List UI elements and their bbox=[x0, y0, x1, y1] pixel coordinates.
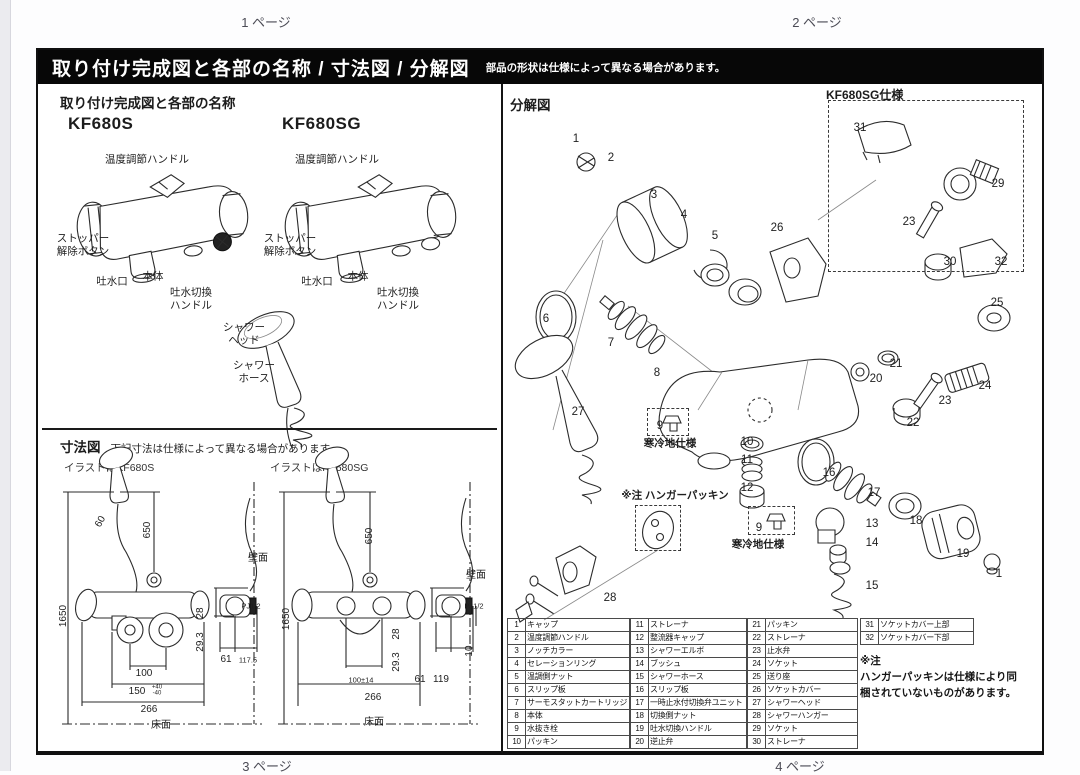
table-row: 20逆止弁 bbox=[631, 736, 747, 749]
part-number: 23 bbox=[748, 645, 766, 658]
dimension-drawing-kf680sg bbox=[270, 440, 485, 740]
section-header-note: 部品の形状は仕様によって異なる場合があります。 bbox=[486, 60, 726, 75]
cold-region-box-1 bbox=[647, 408, 689, 436]
table-row: 16スリップ板 bbox=[631, 684, 747, 697]
part-number: 1 bbox=[508, 619, 526, 632]
part-name: セレーションリング bbox=[526, 658, 630, 671]
part-number: 27 bbox=[748, 697, 766, 710]
part-name: シャワーホース bbox=[649, 671, 747, 684]
table-row: 25送り座 bbox=[748, 671, 858, 684]
part-name: ストレーナ bbox=[766, 736, 858, 749]
part-number: 6 bbox=[508, 684, 526, 697]
part-name: パッキン bbox=[526, 736, 630, 749]
part-name: ソケットカバー下部 bbox=[879, 632, 974, 645]
table-row: 19吐水切換ハンドル bbox=[631, 723, 747, 736]
parts-table-group-2: 11ストレーナ12整流器キャップ13シャワーエルボ14ブッシュ15シャワーホース… bbox=[630, 618, 747, 749]
part-number: 24 bbox=[748, 658, 766, 671]
part-name: ブッシュ bbox=[649, 658, 747, 671]
part-number: 9 bbox=[508, 723, 526, 736]
kf680s-illustration bbox=[62, 142, 267, 302]
dimension-drawing-kf680s bbox=[54, 440, 269, 740]
kf680sg-spec-label: KF680SG仕様 bbox=[826, 86, 903, 103]
parts-table-group-3: 21パッキン22ストレーナ23止水弁24ソケット25送り座26ソケットカバー27… bbox=[747, 618, 858, 749]
manual-page-3[interactable]: 取り付け完成図と各部の名称 KF680S KF680SG bbox=[38, 84, 501, 753]
hanger-packing-note: ※注 ハンガーパッキンは仕様により同 梱されていないものがあります。 bbox=[860, 654, 1017, 701]
table-row: 8本体 bbox=[508, 710, 630, 723]
model-name-kf680sg: KF680SG bbox=[282, 114, 361, 134]
table-row: 26ソケットカバー bbox=[748, 684, 858, 697]
part-name: 一時止水付切換弁ユニット bbox=[649, 697, 747, 710]
table-row: 22ストレーナ bbox=[748, 632, 858, 645]
table-row: 13シャワーエルボ bbox=[631, 645, 747, 658]
part-number: 18 bbox=[631, 710, 649, 723]
part-number: 29 bbox=[748, 723, 766, 736]
section-header-bar: 取り付け完成図と各部の名称 / 寸法図 / 分解図 部品の形状は仕様によって異な… bbox=[38, 50, 1042, 84]
part-number: 19 bbox=[631, 723, 649, 736]
table-row: 15シャワーホース bbox=[631, 671, 747, 684]
completed-figure-title: 取り付け完成図と各部の名称 bbox=[60, 92, 236, 112]
table-row: 7サーモスタットカートリッジ bbox=[508, 697, 630, 710]
part-number: 10 bbox=[508, 736, 526, 749]
model-name-kf680s: KF680S bbox=[68, 114, 133, 134]
hanger-packing-box bbox=[635, 505, 681, 551]
table-row: 3ノッチカラー bbox=[508, 645, 630, 658]
part-name: ストレーナ bbox=[766, 632, 858, 645]
part-name: ノッチカラー bbox=[526, 645, 630, 658]
hand-shower-illustration bbox=[208, 312, 348, 442]
part-name: 送り座 bbox=[766, 671, 858, 684]
part-number: 5 bbox=[508, 671, 526, 684]
part-name: 温度調節ハンドル bbox=[526, 632, 630, 645]
table-row: 14ブッシュ bbox=[631, 658, 747, 671]
part-name: キャップ bbox=[526, 619, 630, 632]
part-name: 整流器キャップ bbox=[649, 632, 747, 645]
part-name: スリップ板 bbox=[526, 684, 630, 697]
page-label-4: 4 ページ bbox=[775, 756, 825, 775]
page-label-2: 2 ページ bbox=[792, 12, 842, 31]
part-number: 2 bbox=[508, 632, 526, 645]
part-number: 30 bbox=[748, 736, 766, 749]
part-name: シャワーエルボ bbox=[649, 645, 747, 658]
part-name: シャワーハンガー bbox=[766, 710, 858, 723]
part-name: シャワーヘッド bbox=[766, 697, 858, 710]
part-number: 13 bbox=[631, 645, 649, 658]
part-number: 32 bbox=[861, 632, 879, 645]
part-number: 16 bbox=[631, 684, 649, 697]
section-divider bbox=[42, 428, 497, 430]
part-name: パッキン bbox=[766, 619, 858, 632]
part-number: 21 bbox=[748, 619, 766, 632]
table-row: 6スリップ板 bbox=[508, 684, 630, 697]
table-row: 11ストレーナ bbox=[631, 619, 747, 632]
part-number: 14 bbox=[631, 658, 649, 671]
part-number: 4 bbox=[508, 658, 526, 671]
part-number: 26 bbox=[748, 684, 766, 697]
parts-table-group-1: 1キャップ2温度調節ハンドル3ノッチカラー4セレーションリング5温調側ナット6ス… bbox=[507, 618, 630, 749]
part-number: 11 bbox=[631, 619, 649, 632]
part-number: 12 bbox=[631, 632, 649, 645]
part-name: ストレーナ bbox=[649, 619, 747, 632]
part-number: 22 bbox=[748, 632, 766, 645]
viewer-edge-strip bbox=[0, 0, 11, 771]
section-header-title: 取り付け完成図と各部の名称 / 寸法図 / 分解図 bbox=[52, 54, 470, 81]
part-name: 逆止弁 bbox=[649, 736, 747, 749]
part-number: 8 bbox=[508, 710, 526, 723]
kf680sg-spec-box bbox=[828, 100, 1024, 272]
table-row: 21パッキン bbox=[748, 619, 858, 632]
table-row: 10パッキン bbox=[508, 736, 630, 749]
part-name: 温調側ナット bbox=[526, 671, 630, 684]
table-row: 24ソケット bbox=[748, 658, 858, 671]
cold-region-box-2 bbox=[748, 506, 795, 535]
table-row: 32ソケットカバー下部 bbox=[861, 632, 974, 645]
part-name: ソケットカバー上部 bbox=[879, 619, 974, 632]
table-row: 17一時止水付切換弁ユニット bbox=[631, 697, 747, 710]
part-number: 20 bbox=[631, 736, 649, 749]
document-spread: 取り付け完成図と各部の名称 / 寸法図 / 分解図 部品の形状は仕様によって異な… bbox=[36, 48, 1044, 755]
part-number: 7 bbox=[508, 697, 526, 710]
part-number: 17 bbox=[631, 697, 649, 710]
table-row: 28シャワーハンガー bbox=[748, 710, 858, 723]
table-row: 12整流器キャップ bbox=[631, 632, 747, 645]
part-number: 31 bbox=[861, 619, 879, 632]
table-row: 4セレーションリング bbox=[508, 658, 630, 671]
part-name: 切換側ナット bbox=[649, 710, 747, 723]
part-name: ソケット bbox=[766, 658, 858, 671]
part-name: 吐水切換ハンドル bbox=[649, 723, 747, 736]
table-row: 1キャップ bbox=[508, 619, 630, 632]
table-row: 5温調側ナット bbox=[508, 671, 630, 684]
table-row: 9水抜き栓 bbox=[508, 723, 630, 736]
parts-table: 1キャップ2温度調節ハンドル3ノッチカラー4セレーションリング5温調側ナット6ス… bbox=[507, 618, 1037, 750]
parts-table-group-4: 31ソケットカバー上部32ソケットカバー下部 bbox=[860, 618, 974, 645]
table-row: 29ソケット bbox=[748, 723, 858, 736]
part-name: 水抜き栓 bbox=[526, 723, 630, 736]
part-name: 本体 bbox=[526, 710, 630, 723]
page-label-1: 1 ページ bbox=[241, 12, 291, 31]
part-number: 25 bbox=[748, 671, 766, 684]
table-row: 30ストレーナ bbox=[748, 736, 858, 749]
page-label-3: 3 ページ bbox=[242, 756, 292, 775]
part-name: 止水弁 bbox=[766, 645, 858, 658]
part-name: ソケットカバー bbox=[766, 684, 858, 697]
table-row: 27シャワーヘッド bbox=[748, 697, 858, 710]
table-row: 2温度調節ハンドル bbox=[508, 632, 630, 645]
part-name: サーモスタットカートリッジ bbox=[526, 697, 630, 710]
part-name: スリップ板 bbox=[649, 684, 747, 697]
part-number: 28 bbox=[748, 710, 766, 723]
table-row: 31ソケットカバー上部 bbox=[861, 619, 974, 632]
part-number: 15 bbox=[631, 671, 649, 684]
part-name: ソケット bbox=[766, 723, 858, 736]
table-row: 23止水弁 bbox=[748, 645, 858, 658]
kf680sg-illustration bbox=[270, 142, 475, 302]
table-row: 18切換側ナット bbox=[631, 710, 747, 723]
part-number: 3 bbox=[508, 645, 526, 658]
